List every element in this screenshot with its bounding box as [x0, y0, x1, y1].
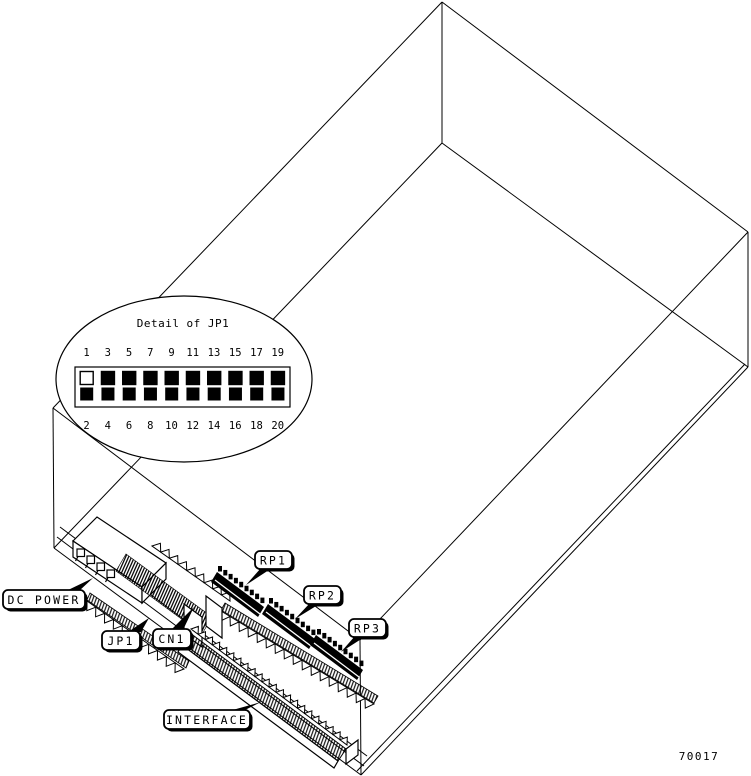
pin-filled — [165, 388, 178, 401]
pin-filled — [144, 372, 157, 385]
svg-text:2: 2 — [83, 420, 89, 432]
label-rp1: RP1 — [246, 551, 295, 585]
svg-text:9: 9 — [168, 347, 174, 359]
pin-filled — [101, 372, 114, 385]
pin-filled — [80, 388, 93, 401]
svg-text:RP2: RP2 — [309, 589, 336, 603]
svg-text:18: 18 — [250, 420, 263, 432]
pin-filled — [123, 388, 136, 401]
dc-pin — [87, 556, 95, 564]
dc-pin — [97, 563, 105, 571]
pin-filled — [271, 372, 284, 385]
svg-text:15: 15 — [229, 347, 242, 359]
detail-title: Detail of JP1 — [137, 317, 230, 330]
svg-text:13: 13 — [208, 347, 221, 359]
svg-text:20: 20 — [271, 420, 284, 432]
pin-filled — [229, 388, 242, 401]
detail-of-jp1-callout: Detail of JP1 135791113151719 2468101214… — [56, 296, 312, 462]
pin-filled — [271, 388, 284, 401]
svg-text:8: 8 — [147, 420, 153, 432]
label-interface: INTERFACE — [164, 702, 261, 732]
dc-pin — [107, 570, 115, 578]
svg-text:4: 4 — [105, 420, 111, 432]
label-rp2: RP2 — [295, 586, 344, 619]
label-dc-power: DC POWER — [3, 578, 93, 612]
pin-filled — [186, 372, 199, 385]
svg-text:CN1: CN1 — [158, 632, 185, 646]
pin-filled — [144, 388, 157, 401]
svg-text:6: 6 — [126, 420, 132, 432]
figure-part-number: 70017 — [679, 750, 720, 763]
svg-text:17: 17 — [250, 347, 263, 359]
svg-text:INTERFACE: INTERFACE — [166, 713, 248, 727]
svg-text:3: 3 — [105, 347, 111, 359]
svg-text:19: 19 — [271, 347, 284, 359]
pin-filled — [208, 372, 221, 385]
svg-text:7: 7 — [147, 347, 153, 359]
svg-text:5: 5 — [126, 347, 132, 359]
pin-filled — [123, 372, 136, 385]
pin-filled — [101, 388, 114, 401]
pin-filled — [186, 388, 199, 401]
pin-filled — [229, 372, 242, 385]
pin-filled — [165, 372, 178, 385]
pin-filled — [250, 388, 263, 401]
svg-text:RP1: RP1 — [260, 554, 287, 568]
svg-text:JP1: JP1 — [107, 634, 134, 648]
label-rp3: RP3 — [341, 619, 389, 652]
svg-text:16: 16 — [229, 420, 242, 432]
dc-pin — [77, 549, 85, 557]
svg-text:14: 14 — [208, 420, 221, 432]
pin-open — [80, 372, 93, 385]
svg-text:12: 12 — [186, 420, 199, 432]
svg-text:RP3: RP3 — [354, 622, 381, 636]
svg-text:DC POWER: DC POWER — [8, 593, 81, 607]
figure-canvas: Detail of JP1 135791113151719 2468101214… — [0, 0, 751, 776]
pin-filled — [250, 372, 263, 385]
svg-text:10: 10 — [165, 420, 178, 432]
svg-text:11: 11 — [186, 347, 199, 359]
svg-text:1: 1 — [83, 347, 89, 359]
pin-filled — [208, 388, 221, 401]
